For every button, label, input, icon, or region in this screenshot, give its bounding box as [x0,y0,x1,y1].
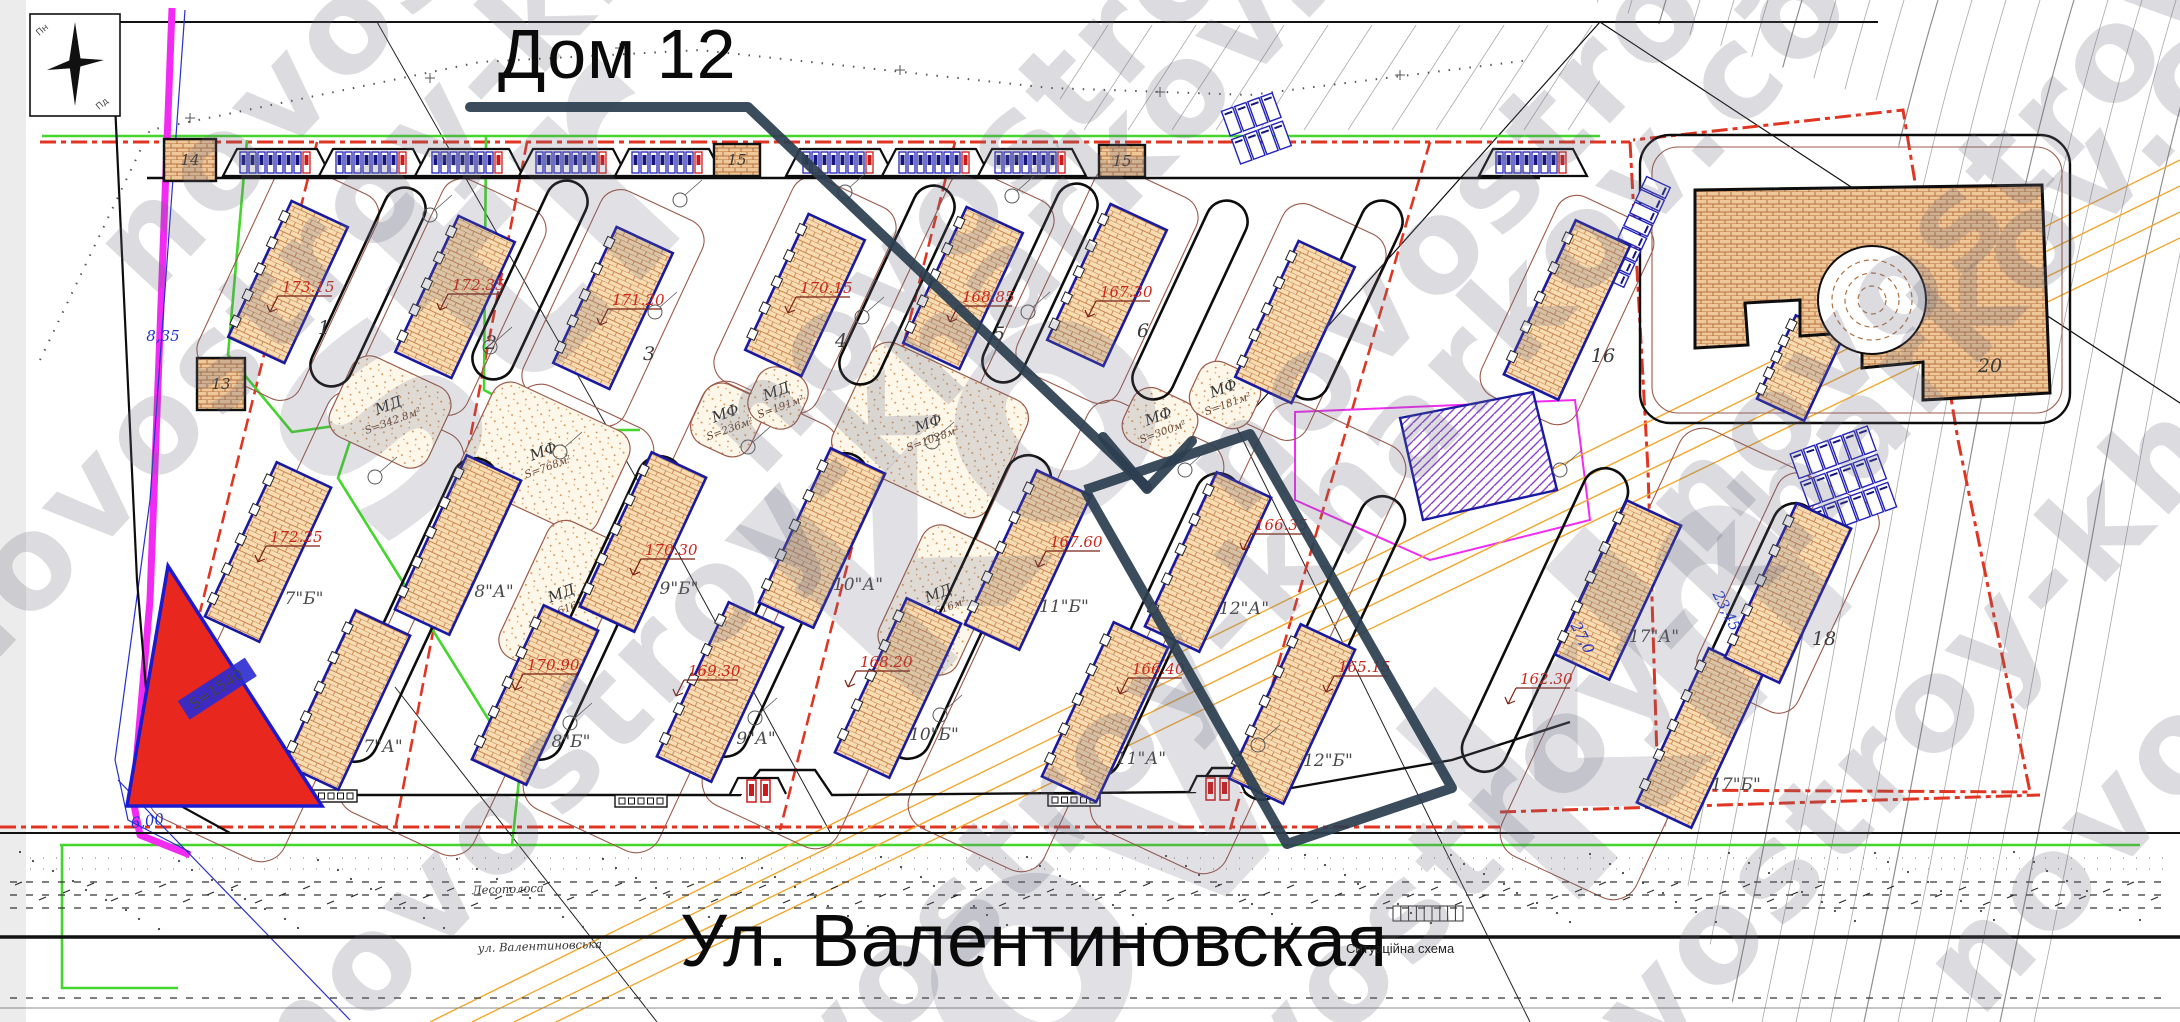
street-dot [635,877,637,879]
street-dot [668,896,670,898]
building-number: 6 [1137,320,1149,342]
survey-cross [1395,70,1405,80]
street-tick [687,884,694,887]
street-tick [231,885,238,888]
building-number: 7"Б" [285,589,324,609]
street-dot [602,858,604,860]
street-dot [1536,902,1538,904]
street-tick [303,886,310,889]
street-dot [138,918,140,920]
red-stall-mark [763,784,768,796]
street-tick [87,883,94,886]
stall-mark [841,155,845,165]
street-dot [615,867,617,869]
building-number: 9"А" [736,729,775,749]
street-tick [567,897,574,900]
street-tick [591,890,598,893]
stall-mark [859,155,863,165]
building-number: 12"Б" [1303,751,1353,771]
building-body [284,610,410,789]
stall-mark [832,155,836,165]
street-tick [39,897,46,900]
street-dot [231,889,233,891]
street-tick [63,890,70,893]
street-tick [183,899,190,902]
street-dot [32,860,34,862]
street-dot [85,889,87,891]
street-dot [1927,881,1929,883]
compass: ПнПд [30,14,120,116]
red-stall-mark [749,784,754,796]
street-tick [615,883,622,886]
path [730,778,786,794]
street-tick [663,891,670,894]
street-dot [761,867,763,869]
street-dot [211,879,213,881]
contour-line [1392,22,1462,130]
street-tick [1527,903,1534,906]
street-small-label: ул. Валентиновська [477,937,603,955]
street-dot [178,860,180,862]
survey-cross [895,65,905,75]
building-number: 7"А" [363,737,402,757]
building-number: 16 [1591,345,1615,367]
street-dot [774,876,776,878]
street-dot [191,869,193,871]
street-dot [1854,920,1856,922]
green-boundary [62,845,178,988]
street-tick [1911,901,1918,904]
street-dot [741,857,743,859]
street-dot [125,909,127,911]
street-dot [244,898,246,900]
stall-mark [868,155,872,165]
street-tick [135,891,142,894]
scheme-note: Ситуаційна схема [1346,941,1454,956]
street-dot [1907,871,1909,873]
street-tick [207,892,214,895]
street-dot [582,926,584,928]
annotation-title: Дом 12 [498,14,737,94]
street-dot [105,899,107,901]
street-name: Ул. Валентиновская [680,898,1388,983]
street-dot [2139,919,2141,921]
site-plan-page: МДS=342.8м²МФS=768м²МФS=1028м²МДS=616м²М… [0,0,2180,1022]
street-dot [549,907,551,909]
street-dot [264,908,266,910]
watermark: novostroy-kharkov.comnovostroy-kharkov.c… [0,0,2180,1022]
elevation-value: 172.25 [270,528,323,546]
street-dot [52,870,54,872]
street-dot [284,918,286,920]
stall-mark [823,155,827,165]
dimension-label: 6,00 [130,810,166,833]
street-tick [759,885,766,888]
street-dot [655,887,657,889]
parking-pocket [730,778,786,802]
street-tick [111,898,118,901]
building-number: 8"А" [474,582,513,602]
street-tick [1887,886,1894,889]
street-tick [639,898,646,901]
street-dot [158,928,160,930]
elevation-value: 167.30 [1100,283,1153,301]
street-tick [2151,897,2158,900]
street-tick [255,900,262,903]
small-building-number: 15 [727,151,746,169]
street-dot [317,859,319,861]
street-dot [72,880,74,882]
site-plan-drawing: МДS=342.8м²МФS=768м²МФS=1028м²МДS=616м²М… [0,0,2180,1022]
stall-mark [850,155,854,165]
street-dot [337,869,339,871]
building [284,610,410,789]
street-dot [794,886,796,888]
street-dot [19,851,21,853]
street-dot [562,916,564,918]
street-tick [159,884,166,887]
